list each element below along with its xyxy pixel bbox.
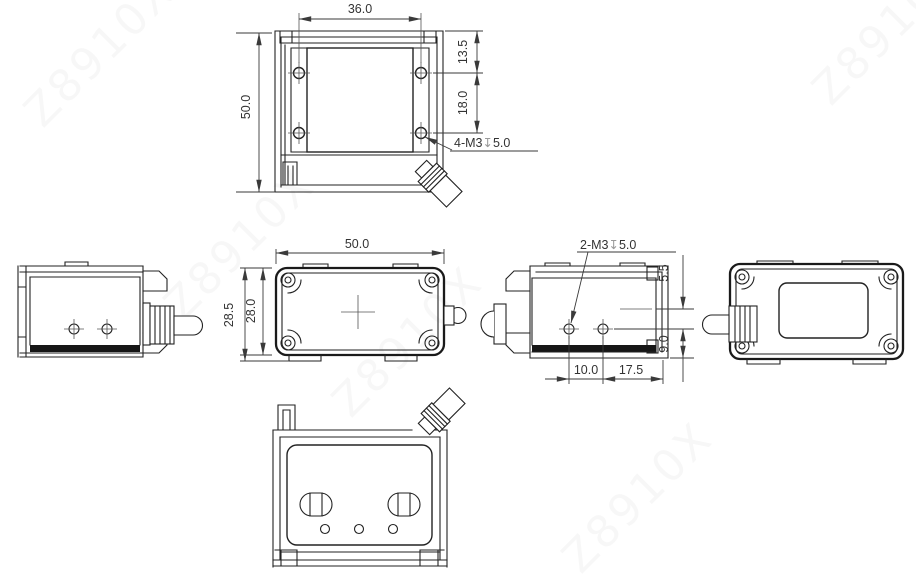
thread-note-text: 4-M3↧5.0 [454, 135, 510, 150]
dim-text-5-5: 5.5 [657, 264, 671, 281]
dim-hole-top-offset-13-5: 13.5 [433, 31, 483, 73]
rear-connector-icon [703, 306, 757, 342]
dim-hole-span-36: 36.0 [299, 2, 421, 63]
thread-note-text: 2-M3↧5.0 [580, 237, 636, 252]
dim-10-0: 10.0 [545, 336, 663, 384]
dim-text-13-5: 13.5 [456, 40, 470, 64]
dim-text-9-0: 9.0 [657, 335, 671, 352]
right-side-view: 2-M3↧5.0 5.5 9.0 10.0 17.5 [481, 237, 694, 384]
left-connector-bulge [481, 304, 506, 344]
dim-hole-pitch-18: 18.0 [433, 73, 483, 133]
cable-connector-bottom-icon [415, 387, 467, 439]
center-crosshair [341, 295, 375, 329]
dim-width-50: 50.0 [276, 237, 444, 264]
dim-text-28-0: 28.0 [244, 299, 258, 323]
holes-right-view [559, 319, 613, 339]
watermark-text: Z8910X [322, 256, 493, 427]
front-right-nub [444, 306, 466, 325]
thread-callout-4-m3: 4-M3↧5.0 [425, 135, 538, 151]
dim-text-50-front: 50.0 [345, 237, 369, 251]
dim-text-28-5: 28.5 [222, 303, 236, 327]
dim-text-17-5: 17.5 [619, 363, 643, 377]
watermark-text: Z8910X [14, 0, 185, 137]
dim-height-50: 50.0 [236, 33, 275, 192]
watermark-text: Z8910X [552, 412, 723, 583]
indicator-holes [321, 525, 398, 534]
cable-connector-icon [412, 157, 464, 209]
display-window [779, 283, 868, 338]
technical-drawing-canvas: Z8910X Z8910X Z8910X Z8910X Z8910X [0, 0, 916, 583]
dim-9-0: 9.0 [657, 329, 683, 382]
oval-cutouts [300, 493, 420, 516]
dim-text-18: 18.0 [456, 91, 470, 115]
dim-5-5: 5.5 [614, 255, 694, 358]
rear-view [703, 261, 903, 364]
mounting-holes-top [288, 62, 432, 144]
dim-text-10-0: 10.0 [574, 363, 598, 377]
dim-17-5: 17.5 [603, 363, 663, 379]
holes-left-view [64, 319, 117, 339]
top-view: 36.0 50.0 13.5 18.0 4-M3↧5.0 [236, 2, 538, 208]
dim-text-36: 36.0 [348, 2, 372, 16]
dim-text-50-top: 50.0 [239, 95, 253, 119]
watermark-text: Z8910X [802, 0, 916, 115]
